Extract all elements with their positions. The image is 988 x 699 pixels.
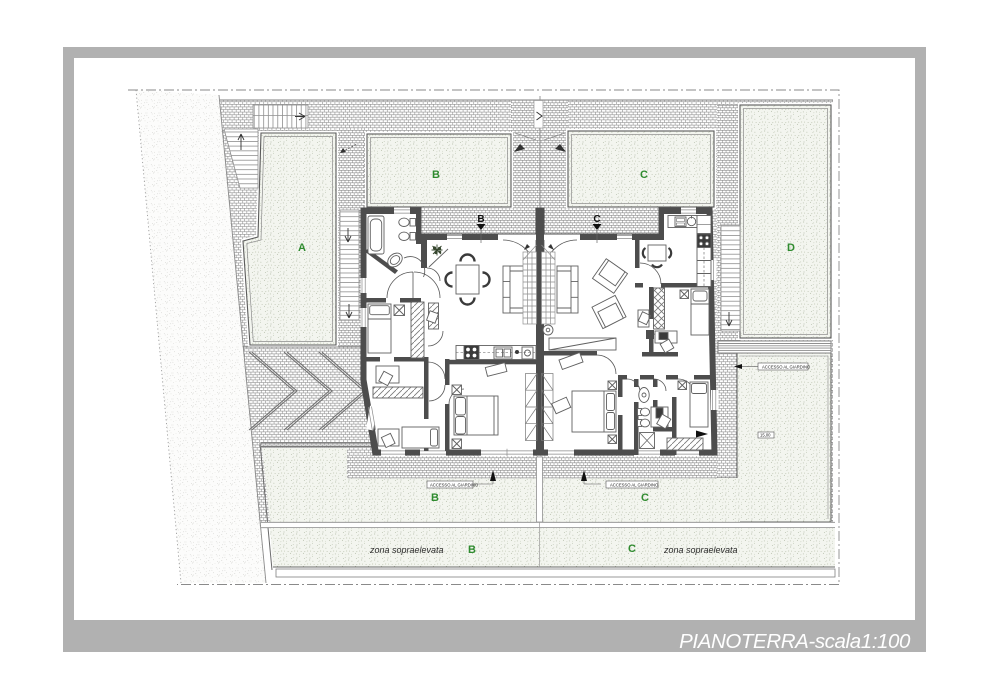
svg-text:PIANOTERRA-scala1:100: PIANOTERRA-scala1:100 [679,630,911,653]
svg-text:zona sopraelevata: zona sopraelevata [663,545,738,555]
svg-text:B: B [477,214,484,225]
svg-text:C: C [593,214,600,225]
svg-text:C: C [641,492,649,504]
svg-text:B: B [468,544,476,556]
svg-text:C: C [640,169,648,181]
svg-text:ACCESSO AL GIARDINO: ACCESSO AL GIARDINO [610,482,659,487]
svg-text:C: C [628,543,636,555]
svg-text:A: A [298,242,306,254]
svg-text:ACCESSO AL GIARDINO: ACCESSO AL GIARDINO [430,482,479,487]
svg-text:B: B [432,169,440,181]
svg-text:D: D [787,242,795,254]
svg-text:B: B [431,492,439,504]
svg-text:15,00: 15,00 [760,433,771,438]
svg-text:ACCESSO AL GIARDINO: ACCESSO AL GIARDINO [762,364,811,369]
svg-text:zona sopraelevata: zona sopraelevata [369,545,444,555]
